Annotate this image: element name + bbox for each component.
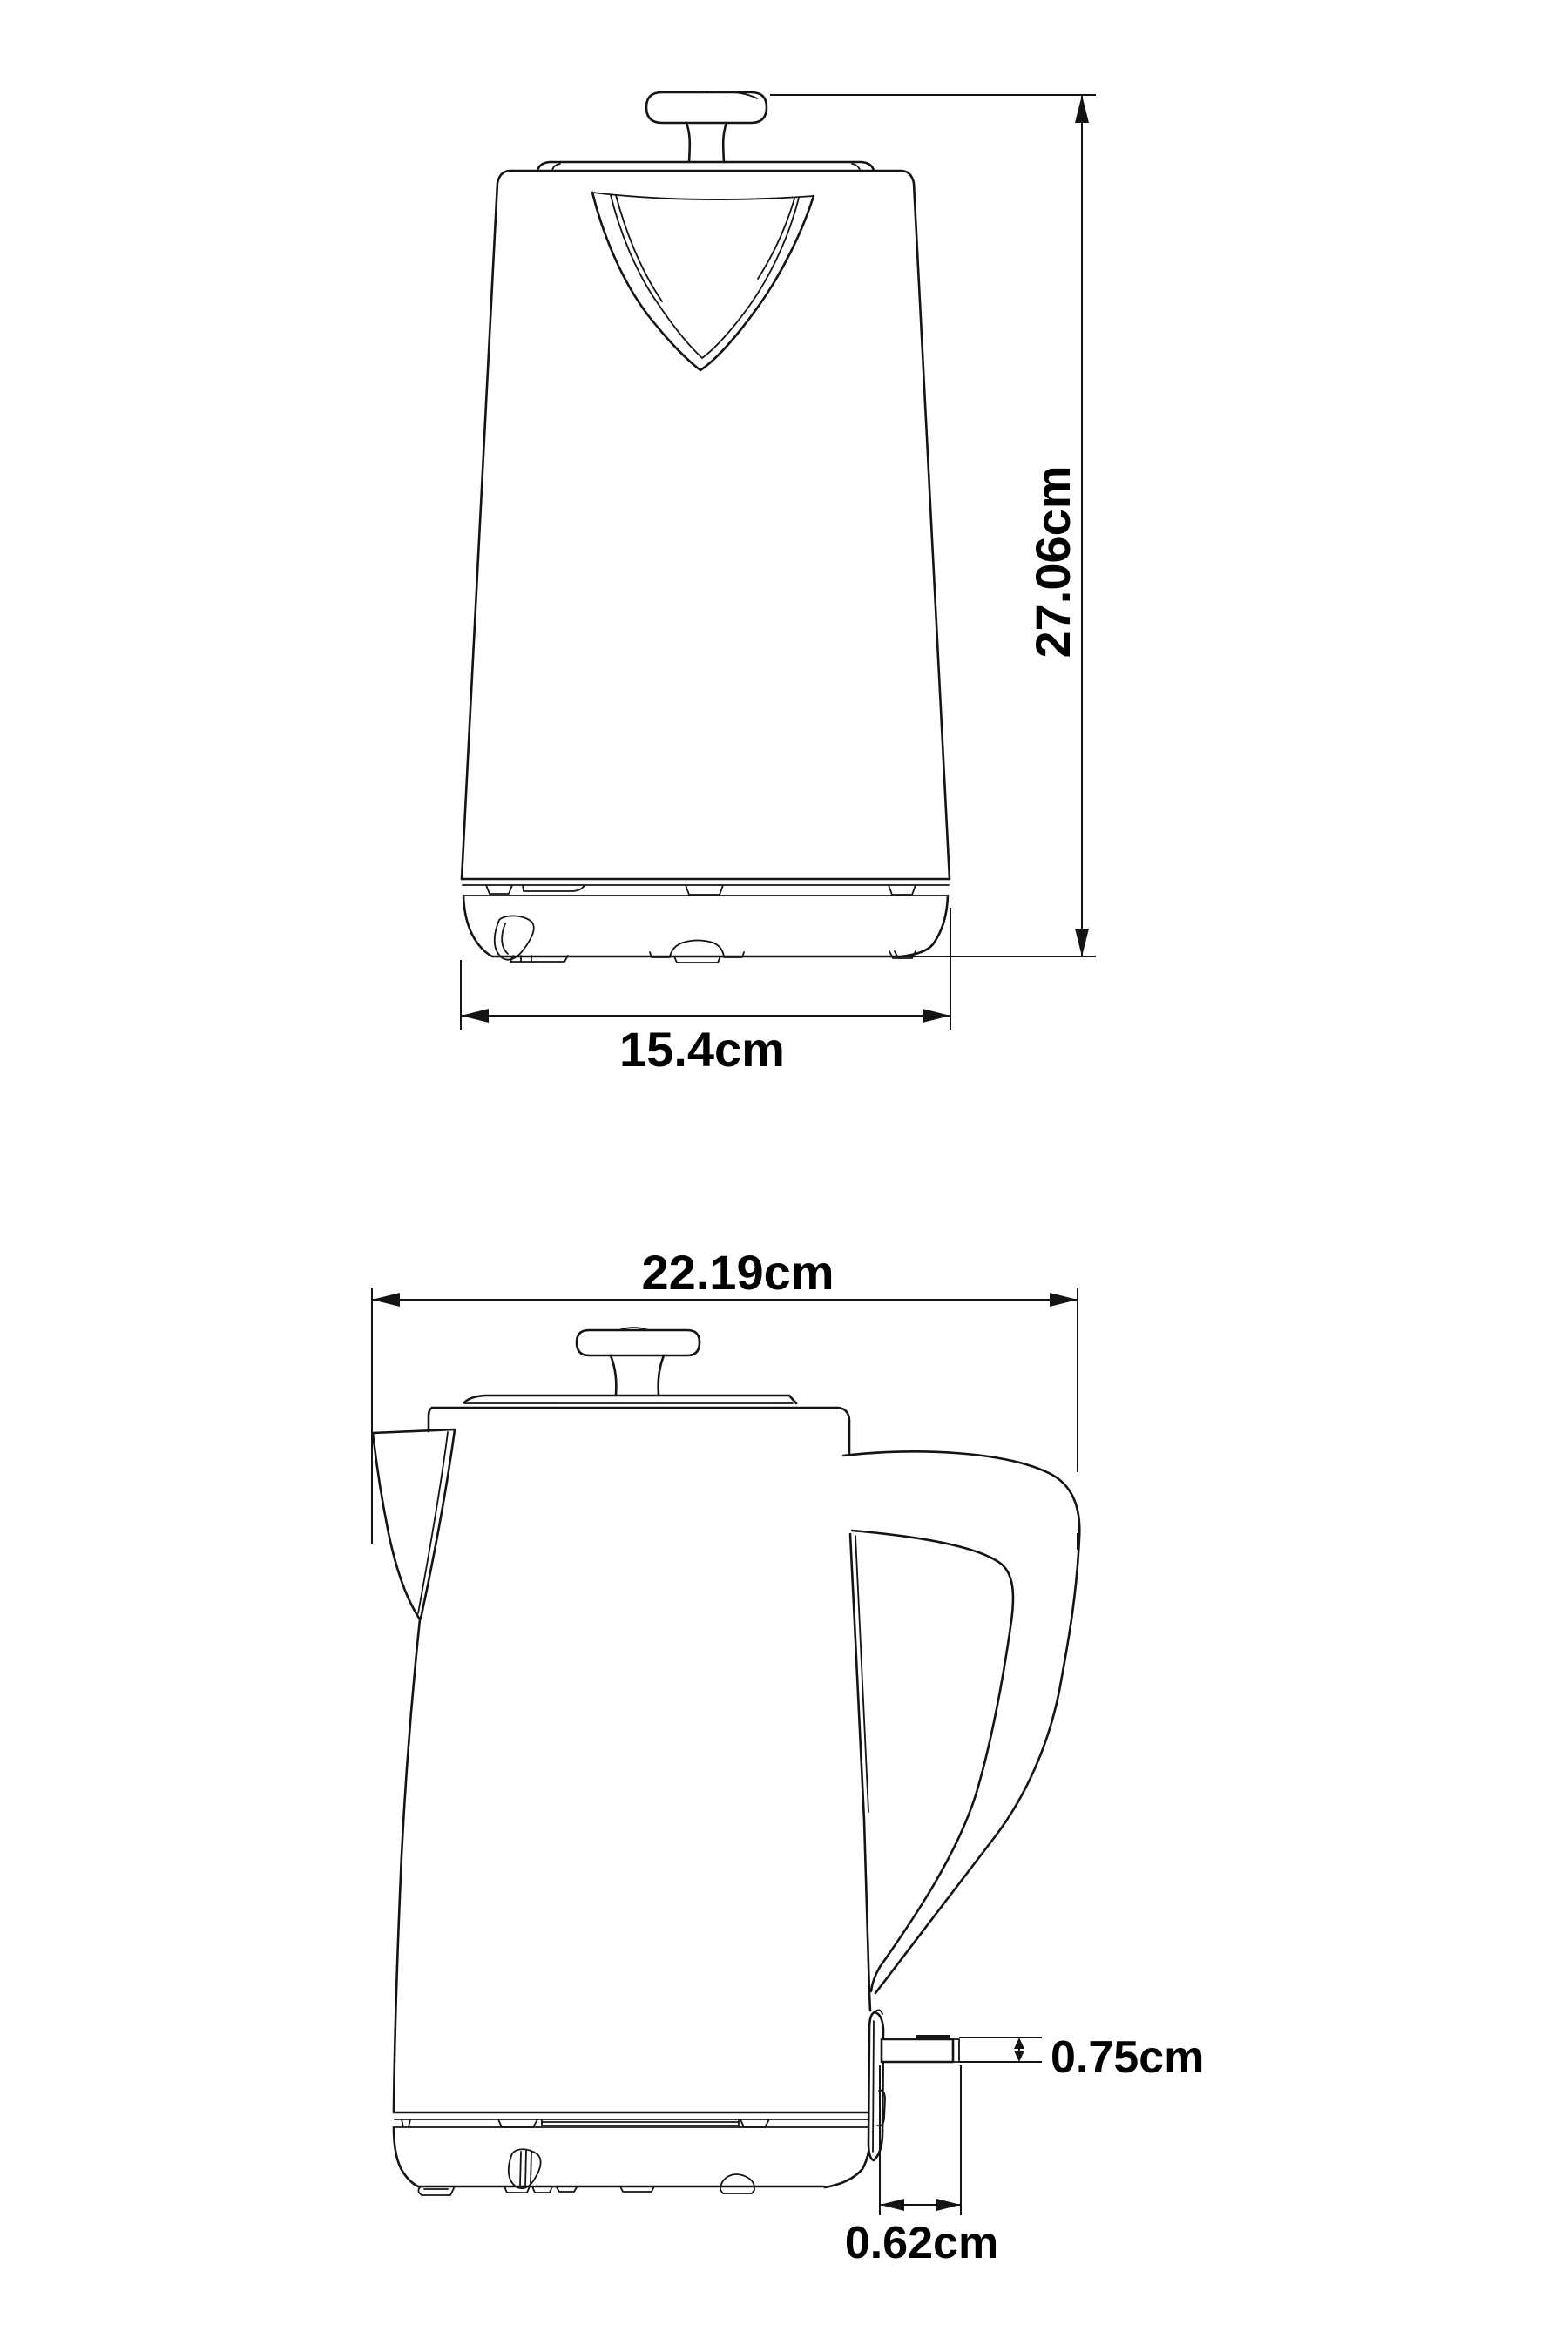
arrow-down-icon [1075, 929, 1089, 956]
kettle-dimension-drawing: 15.4cm 27.06cm [0, 0, 1568, 2352]
front-body [462, 171, 950, 879]
arrow-up-icon [1075, 95, 1089, 123]
arrow-right-icon [936, 2199, 961, 2211]
side-base-feet [418, 2149, 754, 2195]
arrow-left-icon [880, 2199, 904, 2211]
front-lid-knob [646, 91, 767, 162]
arrow-right-icon [1050, 1293, 1078, 1307]
front-lid-handle-recess [592, 193, 814, 370]
front-height-dimension: 27.06cm [770, 95, 1096, 956]
connector-height-dimension: 0.75cm [959, 2032, 1204, 2083]
side-view-kettle [373, 1328, 1079, 2195]
front-width-dimension: 15.4cm [461, 908, 950, 1077]
front-view-kettle [462, 91, 950, 963]
arrow-left-icon [372, 1293, 400, 1307]
front-base-band [462, 879, 950, 896]
side-base [394, 2127, 870, 2187]
side-power-connector [882, 2035, 959, 2062]
side-lid [464, 1396, 796, 1403]
connector-depth-label: 0.62cm [845, 2218, 998, 2268]
arrow-down-icon [1014, 2051, 1024, 2062]
arrow-right-icon [923, 1009, 950, 1023]
side-depth-label: 22.19cm [641, 1245, 834, 1300]
connector-height-label: 0.75cm [1051, 2032, 1204, 2083]
side-rear-latch [868, 2010, 885, 2160]
front-lid [537, 162, 874, 171]
arrow-up-icon [1014, 2038, 1024, 2049]
side-base-band [394, 2112, 868, 2127]
side-view-dimensions: 22.19cm 0.75cm 0.62cm [372, 1245, 1204, 2268]
front-base [463, 896, 948, 956]
drawing-canvas: 15.4cm 27.06cm [0, 0, 1568, 2352]
arrow-left-icon [461, 1009, 489, 1023]
side-lid-knob [577, 1328, 700, 1395]
front-height-label: 27.06cm [1025, 465, 1080, 658]
side-body-top [429, 1408, 849, 1454]
front-width-label: 15.4cm [619, 1022, 785, 1077]
side-handle [843, 1451, 1079, 1993]
side-body-right-edge [850, 1534, 870, 2128]
side-body-left-edge [394, 1619, 420, 2112]
side-spout [373, 1429, 455, 1619]
